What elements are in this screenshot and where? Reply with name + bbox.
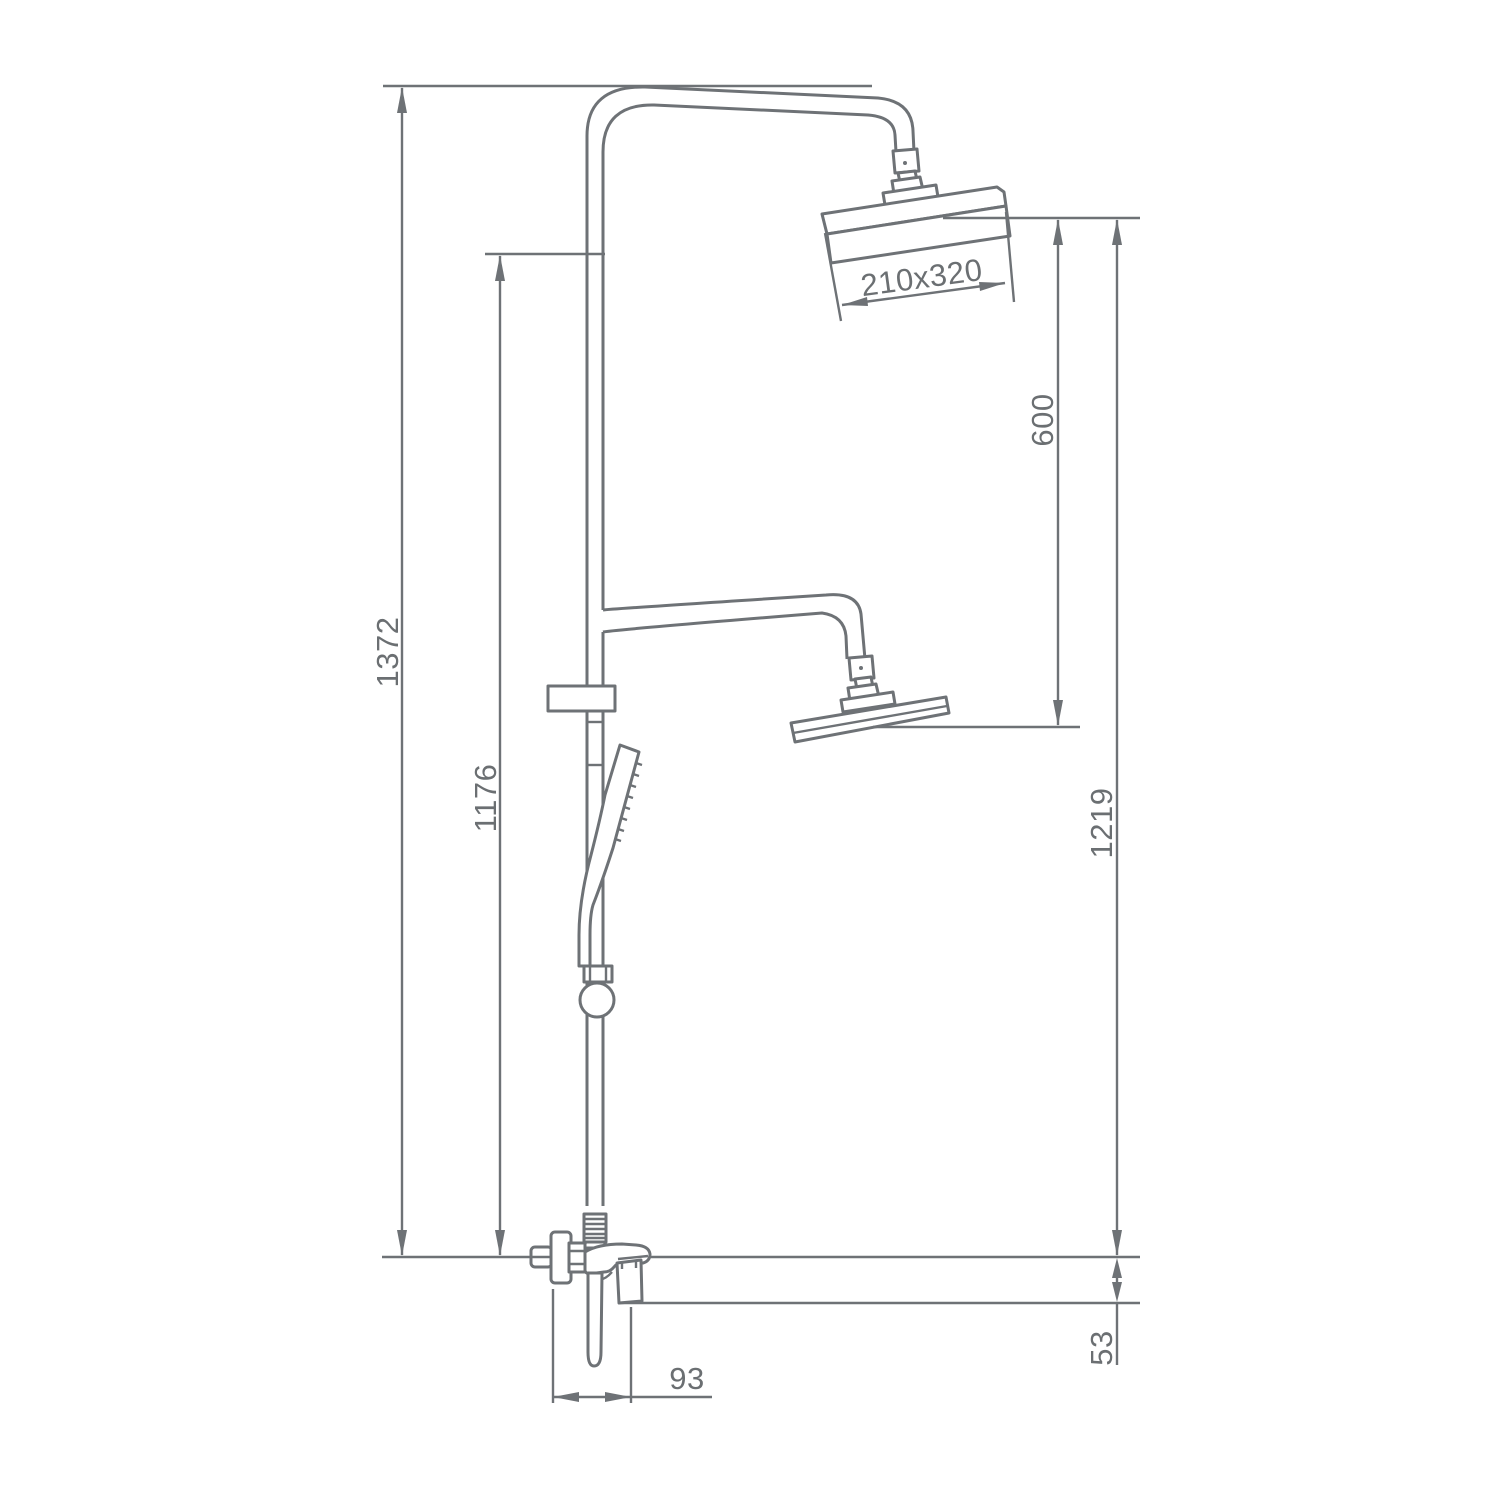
mixer-handle <box>588 1273 602 1366</box>
top-shower-head <box>822 149 1010 263</box>
dim-label-total-height: 1372 <box>370 617 405 688</box>
dim-label-overhead-height: 1219 <box>1084 788 1119 859</box>
dim-label-head-size: 210x320 <box>859 252 985 303</box>
dim-label-mixer-drop: 53 <box>1084 1330 1119 1365</box>
lower-shower-head <box>791 656 949 742</box>
dim-spout-reach: 93 <box>553 1361 712 1402</box>
extension-lines <box>383 86 1140 1403</box>
wall-reference-lines <box>382 1257 1140 1303</box>
dim-label-column-height: 1176 <box>468 764 503 833</box>
dim-label-spout-reach: 93 <box>669 1361 704 1396</box>
dim-label-head-gap: 600 <box>1025 393 1060 446</box>
dim-overhead-height: 1219 <box>1084 219 1122 1256</box>
mixer-hex-nut <box>569 1243 585 1272</box>
slider-holder <box>548 686 615 765</box>
dim-total-height: 1372 <box>370 87 407 1256</box>
spout-outlet <box>617 1260 642 1303</box>
hose-ball-connector <box>580 983 614 1017</box>
dim-column-height: 1176 <box>468 255 505 1256</box>
dim-mixer-drop: 53 <box>1084 1258 1122 1366</box>
technical-drawing-canvas: 1372 1176 600 1219 53 93 <box>0 0 1500 1500</box>
shower-column-dimension-drawing: 1372 1176 600 1219 53 93 <box>0 0 1500 1500</box>
lower-shower-arm <box>603 595 865 659</box>
dim-head-gap: 600 <box>1025 219 1063 726</box>
